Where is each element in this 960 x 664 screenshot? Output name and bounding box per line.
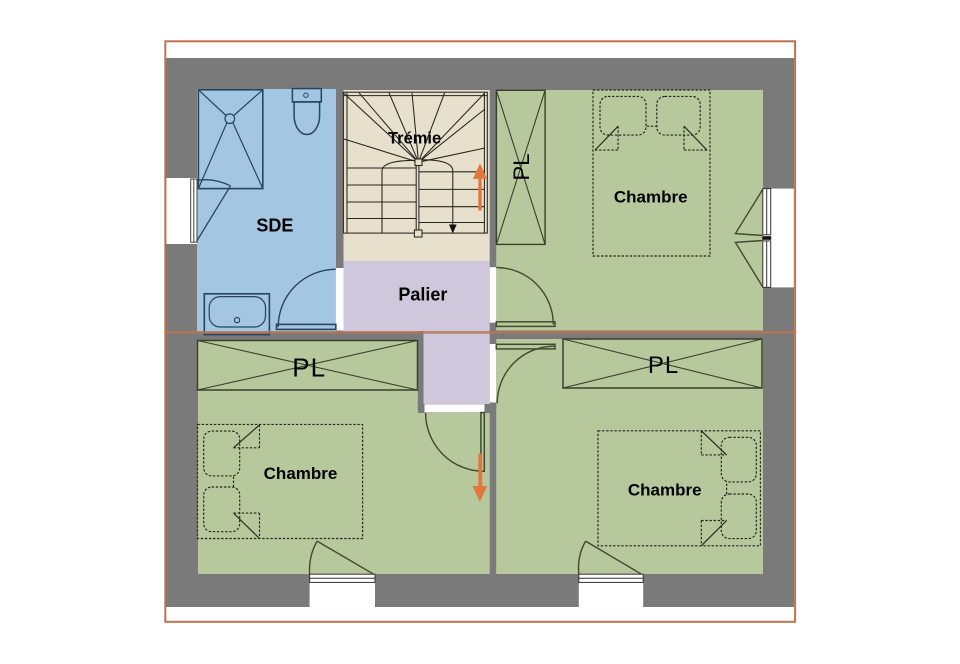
svg-text:Palier: Palier [398, 285, 447, 305]
svg-text:Chambre: Chambre [614, 188, 688, 207]
svg-text:Trémie: Trémie [388, 130, 441, 148]
svg-text:SDE: SDE [256, 216, 293, 236]
svg-text:PL: PL [648, 352, 679, 379]
svg-text:Chambre: Chambre [628, 481, 702, 500]
svg-text:Chambre: Chambre [264, 464, 338, 483]
svg-text:PL: PL [292, 353, 326, 383]
svg-text:PL: PL [509, 154, 534, 181]
